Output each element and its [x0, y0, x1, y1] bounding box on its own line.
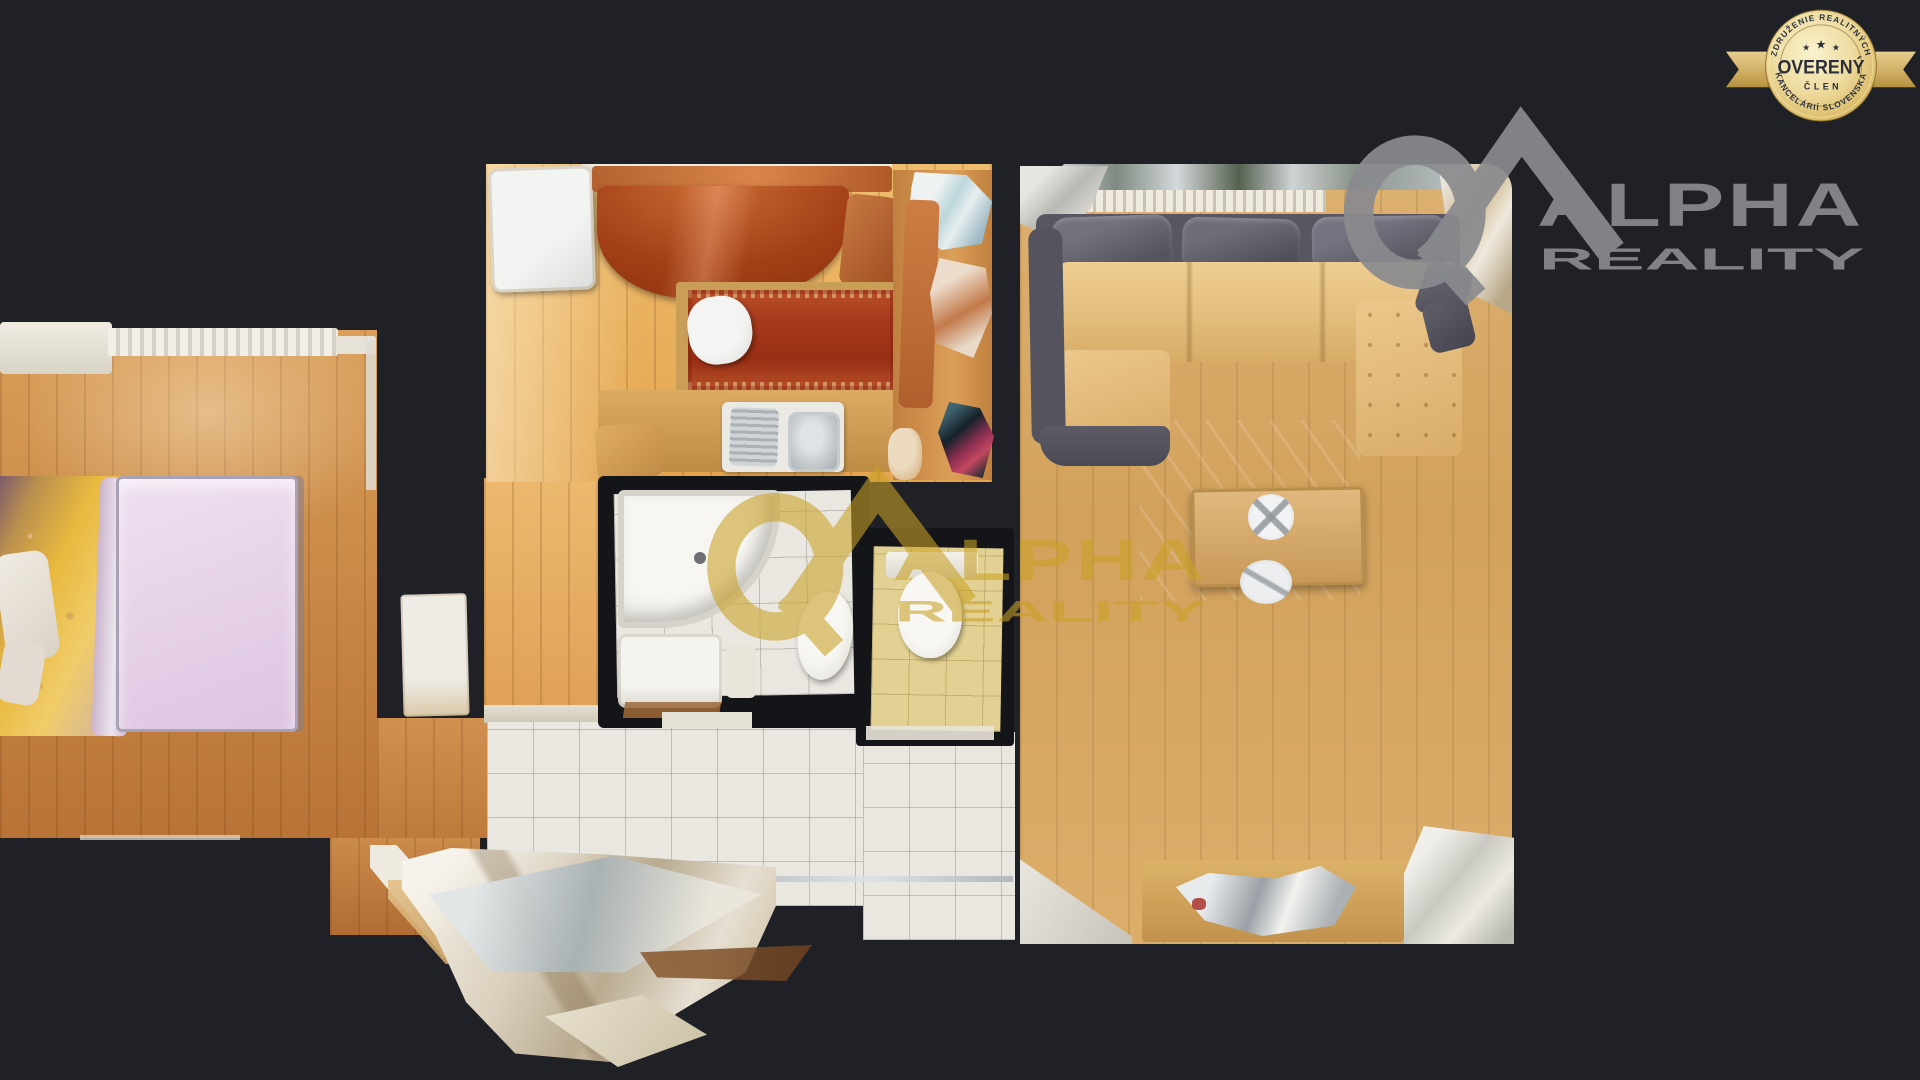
sideboard-red-accent	[1192, 898, 1206, 910]
kitchen-counter-chair	[594, 422, 664, 480]
wc-threshold	[866, 726, 994, 740]
floorplan-photo: ALPHA REALITY ALPHA REALITY	[0, 0, 1920, 1080]
kitchen-fridge	[488, 165, 596, 293]
watermark-brand-name: ALPHA	[893, 528, 1207, 593]
brand-name: ALPHA	[1537, 171, 1864, 239]
sofa-arm-left	[1028, 228, 1066, 445]
badge-star-right-icon: ★	[1832, 43, 1840, 53]
brand-suffix: REALITY	[1539, 242, 1864, 276]
bedroom-bottom-threshold	[80, 835, 240, 840]
bed-mattress	[116, 476, 298, 732]
bedroom-doorway-floor	[377, 718, 487, 838]
badge-title: OVERENÝ	[1777, 54, 1864, 78]
table-bowl	[1240, 560, 1292, 604]
bedroom-radiator	[108, 328, 338, 356]
bathroom-door-opening	[662, 712, 752, 728]
living-room-corner-glitch-bottomright	[1404, 826, 1514, 944]
watermark-brand-suffix: REALITY	[895, 596, 1208, 629]
hall-desk	[400, 593, 469, 717]
badge-star-left-icon: ★	[1802, 43, 1810, 53]
badge-subtitle: ČLEN	[1804, 80, 1842, 91]
hall-threshold	[484, 705, 602, 723]
bedroom-wall-sliver	[366, 340, 376, 490]
table-fan	[1248, 494, 1294, 540]
bedroom-window-sill	[0, 322, 112, 374]
alpha-reality-watermark-logo: ALPHA REALITY	[692, 455, 1222, 654]
verified-member-badge: ZDRUŽENIE REALITNÝCH KANCELÁRIÍ SLOVENSK…	[1722, 2, 1920, 131]
living-room-radiator	[1076, 190, 1326, 212]
hall-wood-floor	[484, 478, 602, 724]
hall-tiles-right	[863, 732, 1015, 940]
badge-star-center-icon: ★	[1816, 38, 1827, 52]
